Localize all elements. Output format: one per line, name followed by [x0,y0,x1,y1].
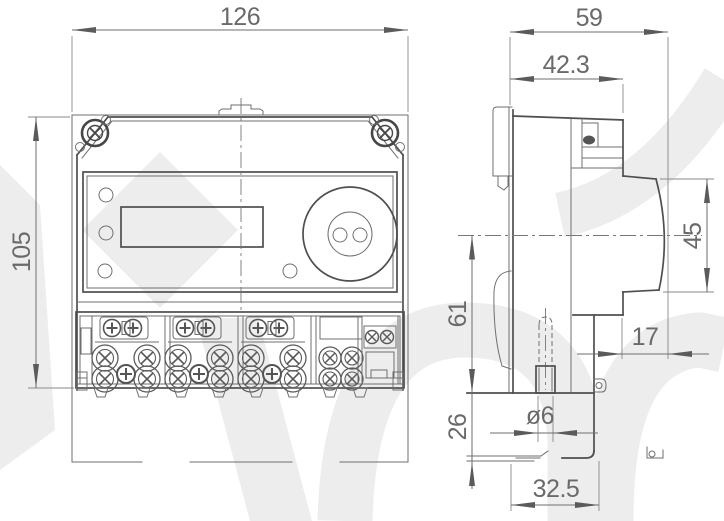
dim-label-center-to-bottom: 61 [444,301,472,328]
dim-label-front-height: 105 [8,232,36,272]
drawing-canvas: 126 105 59 42.3 45 61 [0,0,724,521]
terminal-group-1 [92,317,160,392]
dim-side-upper-depth: 42.3 [510,51,623,113]
dim-label-cover-protrusion: 17 [632,323,659,351]
led-indicator [283,264,297,278]
optical-port [303,187,397,281]
led-indicator [99,188,113,202]
dim-label-side-depth: 59 [576,4,603,32]
dim-front-width: 126 [72,3,408,112]
dim-label-base-bottom-depth: 32.5 [533,475,580,503]
dim-label-side-upper-depth: 42.3 [543,51,590,79]
dim-label-pin-diameter: ø6 [526,402,554,430]
dim-label-clip-drop: 26 [444,414,472,441]
side-seal-screw [583,136,595,145]
dim-clip-drop: 26 [444,393,472,489]
technical-drawing: 126 105 59 42.3 45 61 [0,0,724,521]
dim-label-cover-bulge-height: 45 [679,223,707,250]
dim-center-to-bottom: 61 [444,236,472,394]
led-indicator [98,264,112,278]
cover-bulge [656,179,664,290]
watermark-logo [0,80,724,521]
dim-label-front-width: 126 [220,3,260,31]
